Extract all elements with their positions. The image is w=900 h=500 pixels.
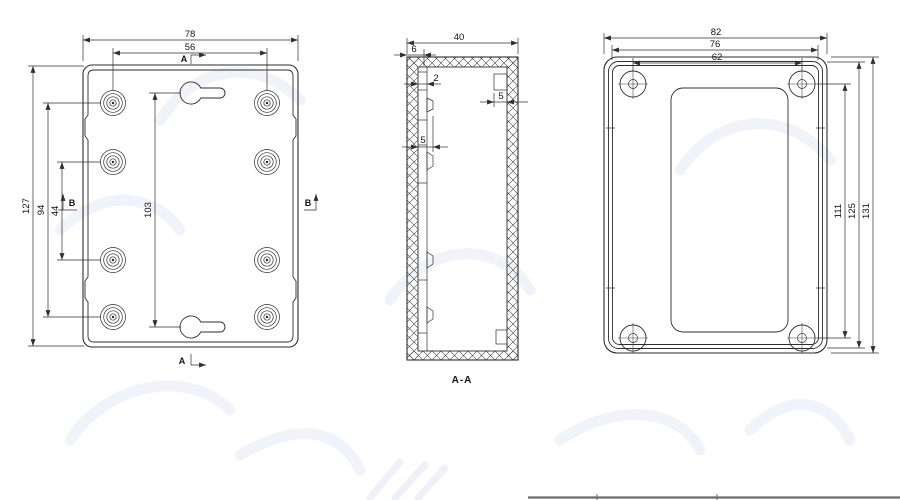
section-letter: A [179,356,186,366]
dim-label: 127 [21,198,32,214]
parting-line-ticks [606,128,825,288]
dim-label: 40 [454,32,465,43]
drawing-sheet: 78 56 A A 127 94 [0,0,900,500]
corner-boss-top [494,74,507,90]
lid-middle-outline [609,62,823,349]
section-letter: B [69,198,76,208]
dim-label: 5 [420,135,425,146]
section-mark-a-top: A [181,54,206,64]
rib-boss [427,152,433,170]
section-letter: A [181,54,188,64]
title-block-edge [528,494,900,500]
screw-boss [101,150,126,175]
hatched-bottom-wall [407,351,518,360]
section-letter: B [305,198,312,208]
enclosure-inner-wall [85,70,296,342]
section-mark-b-right: B [304,194,316,210]
dim-label: 82 [711,27,722,38]
front-view: 82 76 62 111 125 [604,27,879,353]
screw-boss [255,91,280,116]
dim-corner-boss-5-right: 5 [480,91,528,107]
dim-label: 44 [50,206,61,217]
screw-bosses [101,91,280,330]
hatched-left-wall [407,57,418,360]
lid-outer-outline [604,57,827,353]
rib-boss [427,307,433,323]
screw-boss [255,150,280,175]
rib-boss [427,98,433,112]
section-outer-outline [407,57,518,360]
screw-boss [101,248,126,273]
screw-boss [101,305,126,330]
dim-hole-spacing-62: 62 [633,52,802,70]
section-view: 40 6 2 5 5 [394,32,528,386]
technical-drawing: 78 56 A A 127 94 [0,0,900,500]
screw-boss [255,248,280,273]
dim-label: 76 [710,39,721,50]
dim-label: 56 [185,42,196,53]
dim-label: 2 [433,73,438,84]
screw-boss [255,305,280,330]
screw-hole [787,69,817,99]
screw-boss [101,91,126,116]
corner-boss-bottom [496,330,507,344]
dim-label: 5 [498,91,503,102]
dim-label: 78 [185,29,196,40]
dim-label: 94 [36,205,47,216]
dim-label: 6 [411,44,416,55]
watermark-pattern [60,72,850,498]
side-rib-profile [418,67,433,351]
dim-label: 111 [833,204,844,218]
dim-label: 131 [861,203,872,219]
section-view-label: A-A [452,375,473,386]
dim-label: 125 [847,203,858,219]
keyhole-slot-bottom [180,316,225,338]
hatched-right-wall [507,57,518,360]
section-mark-a-bottom: A [179,354,206,366]
dim-label: 62 [712,52,723,63]
screw-hole [618,69,648,99]
screw-holes [618,69,817,353]
dim-label: 103 [143,202,154,218]
